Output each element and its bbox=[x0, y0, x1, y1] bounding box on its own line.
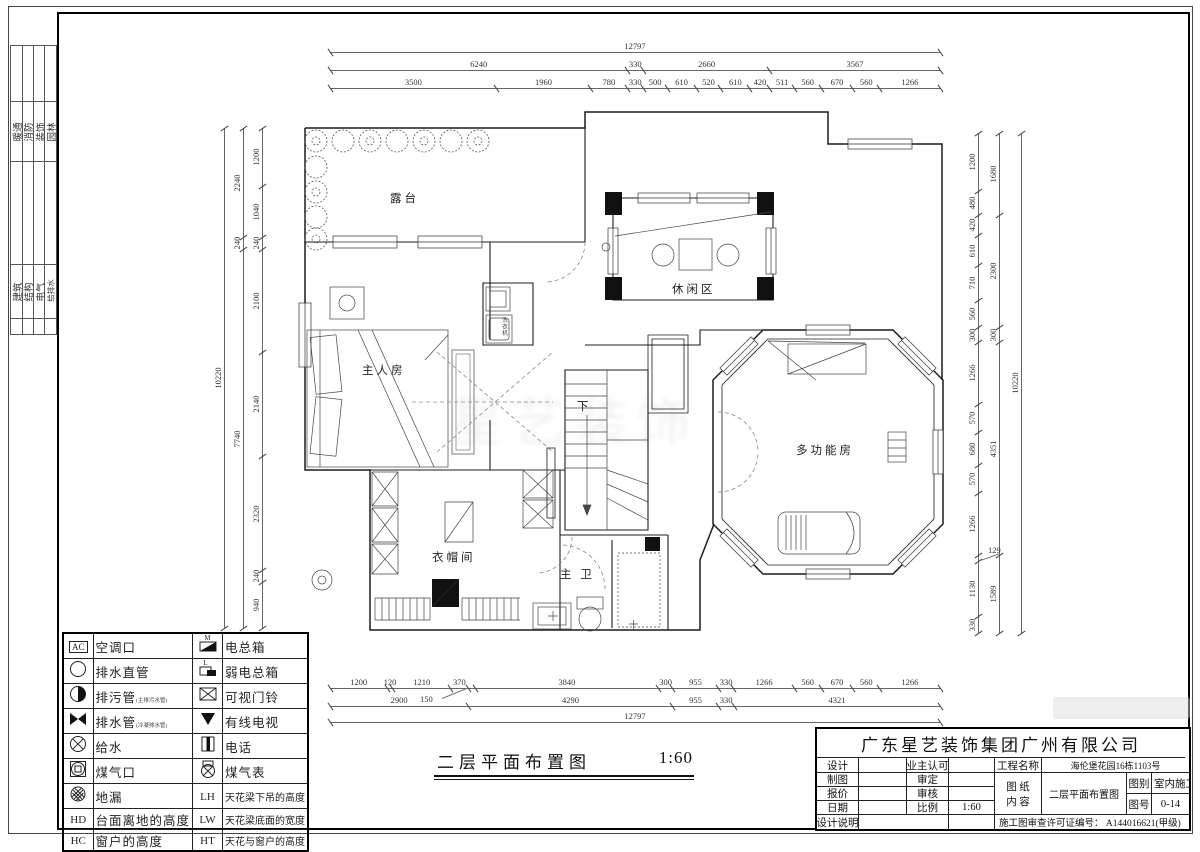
dim-label: 6240 bbox=[470, 59, 487, 69]
value-number: 0-14 bbox=[1152, 794, 1189, 815]
svg-text:M: M bbox=[204, 634, 211, 642]
dim-label: 570 bbox=[967, 412, 977, 425]
legend-symbol-icon bbox=[63, 784, 93, 809]
dim-label: 1200 bbox=[251, 149, 261, 166]
legend-label: 给水 bbox=[93, 734, 193, 759]
field-draft: 制图 bbox=[817, 773, 859, 787]
dim-label: 420 bbox=[967, 219, 977, 232]
legend-label: 煤气口 bbox=[93, 759, 193, 784]
dim-label: 500 bbox=[649, 77, 662, 87]
dim-label: 560 bbox=[860, 677, 873, 687]
value-date bbox=[859, 801, 907, 815]
dim-label: 955 bbox=[689, 677, 702, 687]
field-sheet-content: 图 纸 内 容 bbox=[995, 773, 1042, 815]
legend-label: 地漏 bbox=[93, 784, 193, 809]
caption-title: 二层平面布置图 bbox=[437, 748, 591, 773]
dimension-element bbox=[978, 133, 979, 633]
legend-label: 有线电视 bbox=[223, 709, 309, 734]
legend-label: 弱电总箱 bbox=[223, 659, 309, 684]
dim-label: 670 bbox=[831, 77, 844, 87]
dim-note: 150 bbox=[420, 694, 433, 704]
value-check bbox=[949, 787, 995, 801]
legend-label: 台面离地的高度 bbox=[93, 809, 193, 830]
dim-label: 12797 bbox=[624, 41, 645, 51]
dim-label: 511 bbox=[776, 77, 788, 87]
value-project: 海伦堡花园16栋1103号 bbox=[1042, 758, 1189, 773]
dimension-element bbox=[330, 688, 940, 689]
legend-row: 给水电话 bbox=[63, 734, 308, 759]
dimension-element bbox=[999, 133, 1000, 633]
value-draft bbox=[859, 773, 907, 787]
legend-symbol-icon: HT bbox=[193, 830, 223, 852]
dimension-element bbox=[330, 70, 940, 71]
dim-label: 240 bbox=[251, 237, 261, 250]
field-approve: 审定 bbox=[907, 773, 949, 787]
field-scale: 比例 bbox=[907, 801, 949, 815]
legend-label: 天花梁底面的宽度 bbox=[223, 809, 309, 830]
dim-label: 4351 bbox=[988, 440, 998, 457]
field-check: 审核 bbox=[907, 787, 949, 801]
dim-label: 570 bbox=[967, 473, 977, 486]
dim-label: 300 bbox=[659, 677, 672, 687]
legend-symbol-icon: HD bbox=[63, 809, 93, 830]
legend-symbol-icon bbox=[63, 709, 93, 734]
dim-label: 560 bbox=[967, 308, 977, 321]
value-quote bbox=[859, 787, 907, 801]
dim-label: 3840 bbox=[558, 677, 575, 687]
dimension-element bbox=[442, 688, 468, 699]
dim-label: 560 bbox=[801, 677, 814, 687]
field-project: 工程名称 bbox=[995, 758, 1042, 773]
legend-label: 可视门铃 bbox=[223, 684, 309, 709]
dim-label: 1210 bbox=[413, 677, 430, 687]
permit-number: 施工图审查许可证编号： A144016621(甲级) bbox=[995, 815, 1189, 829]
dim-label: 2900 bbox=[391, 695, 408, 705]
dimension-element bbox=[330, 722, 940, 723]
legend-symbol-icon bbox=[193, 684, 223, 709]
dim-label: 3500 bbox=[405, 77, 422, 87]
dimension-element bbox=[243, 128, 244, 628]
dim-label: 2300 bbox=[988, 263, 998, 280]
field-owner-ok: 业主认可 bbox=[907, 758, 949, 773]
legend-symbol-icon bbox=[193, 759, 223, 784]
legend-row: AC空调口M电总箱 bbox=[63, 633, 308, 659]
legend-label: 电话 bbox=[223, 734, 309, 759]
legend-symbol-icon: HC bbox=[63, 830, 93, 852]
value-category: 室内施工 bbox=[1152, 773, 1189, 794]
dim-label: 330 bbox=[629, 59, 642, 69]
legend-symbol-icon bbox=[63, 659, 93, 684]
dim-label: 1200 bbox=[967, 154, 977, 171]
caption-scale: 1:60 bbox=[659, 748, 693, 773]
field-category: 图别 bbox=[1127, 773, 1152, 794]
caption-underline bbox=[434, 775, 694, 777]
dimension-element bbox=[1021, 133, 1022, 633]
caption-underline-2 bbox=[434, 779, 694, 780]
value-sheet-content: 二层平面布置图 bbox=[1042, 773, 1127, 815]
value-scale: 1:60 bbox=[949, 801, 995, 815]
dim-label: 330 bbox=[629, 77, 642, 87]
field-date: 日期 bbox=[817, 801, 859, 815]
dimension-element bbox=[330, 706, 940, 707]
dim-label: 1266 bbox=[967, 516, 977, 533]
dim-label: 300 bbox=[967, 329, 977, 342]
legend-symbol-icon: LW bbox=[193, 809, 223, 830]
dim-label: 120 bbox=[384, 677, 397, 687]
title-block: 广东星艺装饰集团广州有限公司 设计 业主认可 制图 审定 报价 审核 日期 比例… bbox=[815, 727, 1191, 831]
dim-label: 10220 bbox=[213, 367, 223, 388]
legend-label: 排水管(冷凝排水管) bbox=[93, 709, 193, 734]
legend-row: HD台面离地的高度LW天花梁底面的宽度 bbox=[63, 809, 308, 830]
dim-label: 1960 bbox=[535, 77, 552, 87]
legend-symbol-icon: AC bbox=[63, 633, 93, 659]
dim-label: 1266 bbox=[901, 677, 918, 687]
dimension-element bbox=[224, 128, 225, 628]
legend-label: 窗户的高度 bbox=[93, 830, 193, 852]
dim-label: 520 bbox=[702, 77, 715, 87]
dim-label: 480 bbox=[967, 197, 977, 210]
field-notes: 设计说明 bbox=[817, 815, 859, 829]
legend-label: 空调口 bbox=[93, 633, 193, 659]
dim-label: 780 bbox=[602, 77, 615, 87]
dim-label: 10220 bbox=[1010, 372, 1020, 393]
legend-row: 排水直管L弱电总箱 bbox=[63, 659, 308, 684]
dim-label: 940 bbox=[251, 599, 261, 612]
dim-label: 1040 bbox=[251, 204, 261, 221]
company-name: 广东星艺装饰集团广州有限公司 bbox=[817, 729, 1185, 758]
legend-row: 排污管(主排污水管)可视门铃 bbox=[63, 684, 308, 709]
legend-symbol-icon: M bbox=[193, 633, 223, 659]
svg-text:L: L bbox=[203, 659, 208, 667]
dim-label: 1589 bbox=[988, 586, 998, 603]
drawing-caption: 二层平面布置图 1:60 bbox=[437, 748, 693, 773]
value-approve bbox=[949, 773, 995, 787]
dim-label: 2660 bbox=[698, 59, 715, 69]
dim-label: 2140 bbox=[251, 396, 261, 413]
dimension-element bbox=[330, 88, 940, 89]
value-notes bbox=[859, 815, 949, 829]
dim-label: 330 bbox=[967, 619, 977, 632]
dim-label: 670 bbox=[831, 677, 844, 687]
dimension-element bbox=[262, 128, 263, 628]
dim-label: 560 bbox=[860, 77, 873, 87]
field-number: 图号 bbox=[1127, 794, 1152, 815]
legend-label: 煤气表 bbox=[223, 759, 309, 784]
legend-symbol-icon bbox=[193, 709, 223, 734]
field-quote: 报价 bbox=[817, 787, 859, 801]
dim-label: 300 bbox=[988, 329, 998, 342]
dim-label: 4321 bbox=[829, 695, 846, 705]
legend-row: 地漏LH天花梁下吊的高度 bbox=[63, 784, 308, 809]
dim-label: 1130 bbox=[967, 581, 977, 598]
dim-label: 1266 bbox=[756, 677, 773, 687]
value-design bbox=[859, 758, 907, 773]
value-owner-ok bbox=[949, 758, 995, 773]
dim-label: 1200 bbox=[350, 677, 367, 687]
dim-label: 2320 bbox=[251, 505, 261, 522]
legend-symbol-icon: L bbox=[193, 659, 223, 684]
dim-label: 710 bbox=[967, 277, 977, 290]
dim-label: 7740 bbox=[232, 430, 242, 447]
notes-extra bbox=[949, 815, 995, 829]
dim-label: 240 bbox=[251, 570, 261, 583]
dim-label: 2240 bbox=[232, 174, 242, 191]
dim-label: 610 bbox=[729, 77, 742, 87]
legend-label: 排水直管 bbox=[93, 659, 193, 684]
legend-symbol-icon: LH bbox=[193, 784, 223, 809]
legend-row: 煤气口煤气表 bbox=[63, 759, 308, 784]
dim-label: 1266 bbox=[967, 365, 977, 382]
dimension-element bbox=[330, 52, 940, 53]
dim-label: 1680 bbox=[988, 166, 998, 183]
legend-label: 排污管(主排污水管) bbox=[93, 684, 193, 709]
dim-label: 610 bbox=[967, 244, 977, 257]
dim-label: 680 bbox=[967, 442, 977, 455]
legend-table: AC空调口M电总箱排水直管L弱电总箱排污管(主排污水管)可视门铃排水管(冷凝排水… bbox=[62, 632, 309, 852]
dim-label: 3567 bbox=[846, 59, 863, 69]
dim-label: 12797 bbox=[624, 711, 645, 721]
field-design: 设计 bbox=[817, 758, 859, 773]
dim-label: 560 bbox=[801, 77, 814, 87]
legend-label: 天花梁下吊的高度 bbox=[223, 784, 309, 809]
legend-symbol-icon bbox=[63, 759, 93, 784]
legend-symbol-icon bbox=[63, 684, 93, 709]
dim-label: 330 bbox=[720, 695, 733, 705]
dim-label: 240 bbox=[232, 237, 242, 250]
dim-label: 370 bbox=[453, 677, 466, 687]
dim-label: 955 bbox=[689, 695, 702, 705]
legend-symbol-icon bbox=[193, 734, 223, 759]
dim-label: 4290 bbox=[562, 695, 579, 705]
dim-label: 330 bbox=[720, 677, 733, 687]
legend-label: 天花与窗户的高度 bbox=[223, 830, 309, 852]
legend-symbol-icon bbox=[63, 734, 93, 759]
dim-label: 1266 bbox=[901, 77, 918, 87]
dim-label: 420 bbox=[754, 77, 767, 87]
legend-row: HC窗户的高度HT天花与窗户的高度 bbox=[63, 830, 308, 852]
dim-label: 2100 bbox=[251, 292, 261, 309]
dim-label: 610 bbox=[675, 77, 688, 87]
cad-sheet: { "sidebar": { "group1": ["暖通","消防","装饰"… bbox=[0, 0, 1200, 839]
legend-label: 电总箱 bbox=[223, 633, 309, 659]
legend-row: 排水管(冷凝排水管)有线电视 bbox=[63, 709, 308, 734]
